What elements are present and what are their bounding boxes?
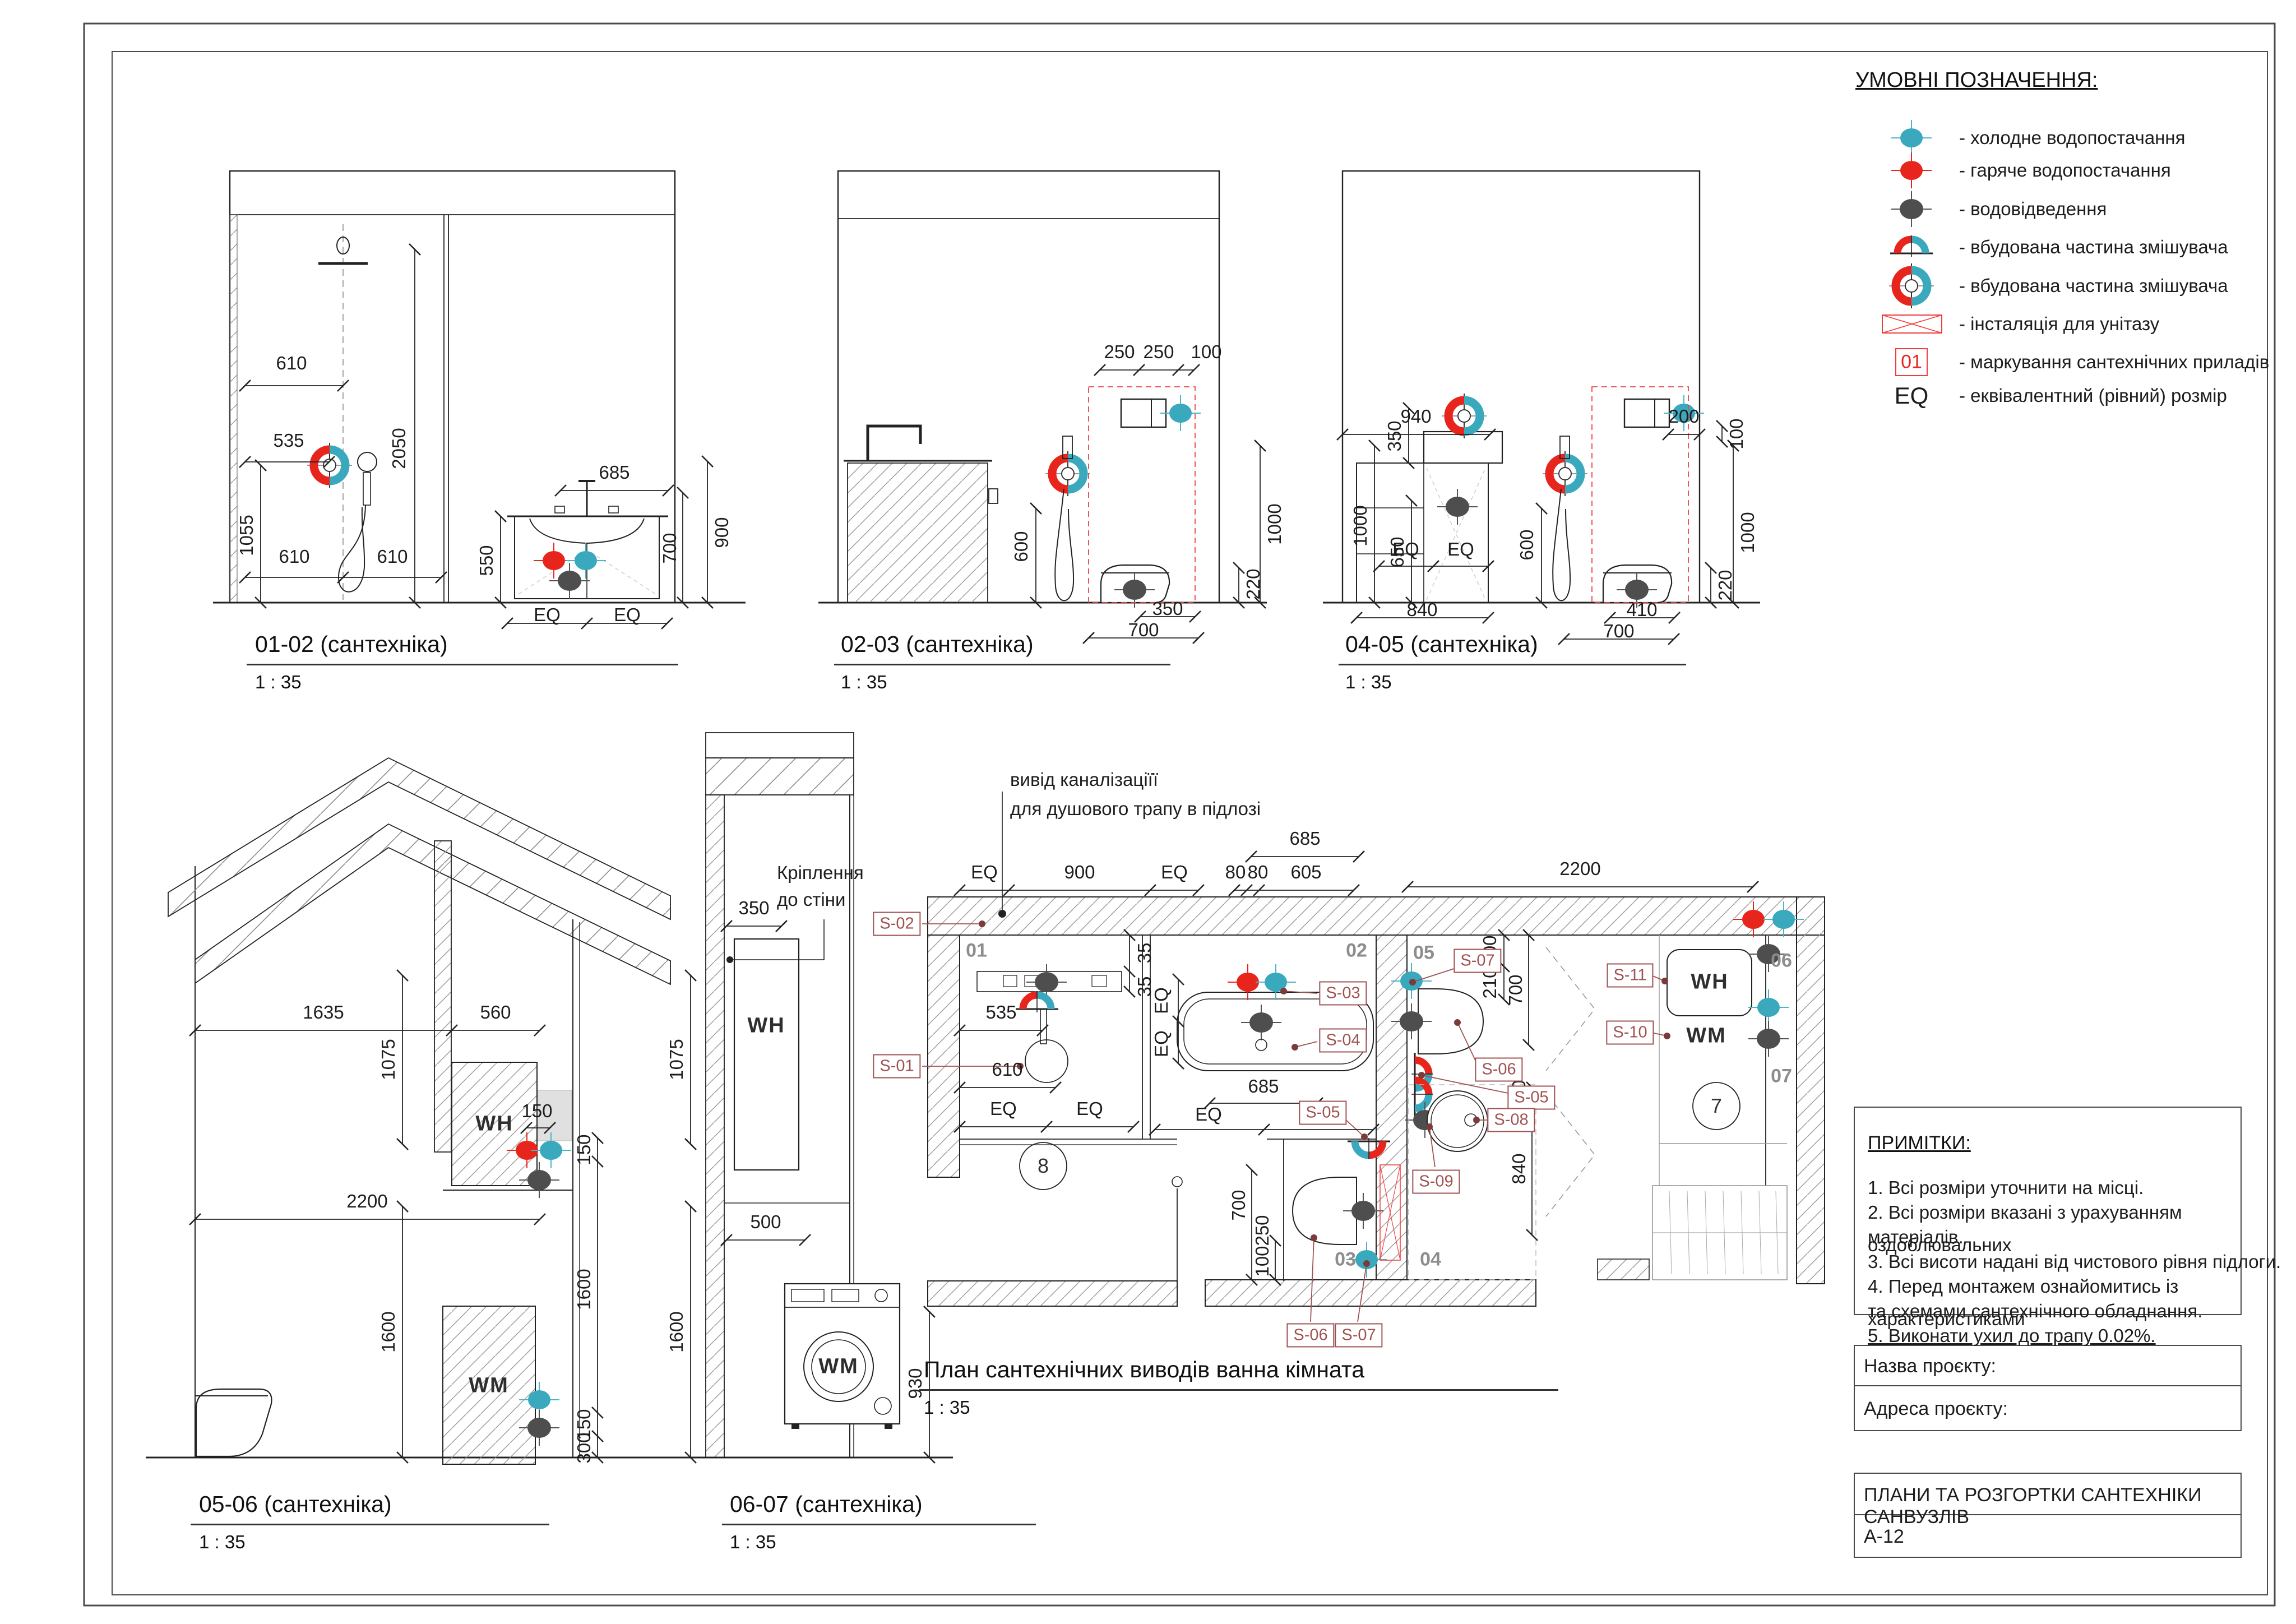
dim: 700 [1228, 1190, 1249, 1220]
dim: EQ [990, 1098, 1017, 1119]
room-number: 05 [1413, 942, 1434, 964]
dim: EQ [1076, 1098, 1103, 1119]
dim: 1000 [1737, 512, 1758, 553]
dim: 840 [1508, 1153, 1530, 1184]
dim: 700 [1603, 621, 1634, 642]
dim: EQ [534, 604, 561, 626]
sheet-title: ПЛАНИ ТА РОЗГОРТКИ САНТЕХНІКИ САНВУЗЛІВ [1864, 1484, 2296, 1528]
view-title: План сантехнічних виводів ванна кімната [924, 1357, 1364, 1383]
dim: 535 [273, 430, 304, 451]
dim: 1600 [666, 1311, 687, 1352]
dim: 1600 [573, 1269, 595, 1310]
room-circle-label: 8 [1038, 1154, 1049, 1178]
dim: 610 [276, 353, 307, 374]
fixture-tag: S-07 [1335, 1324, 1382, 1348]
view-scale: 1 : 35 [1345, 672, 1392, 693]
water-heater-label: WH [475, 1112, 513, 1136]
dim: 900 [711, 517, 733, 548]
note-5: 5. Виконати ухил до трапу 0.02%. [1868, 1320, 2156, 1352]
dim: 600 [1011, 531, 1032, 562]
room-circle-label: 7 [1711, 1094, 1722, 1118]
fixture-tag: S-11 [1607, 964, 1653, 988]
dim: 685 [1289, 828, 1320, 849]
dim: 80 [1248, 862, 1269, 883]
dim: 605 [1290, 862, 1321, 883]
view-title: 05-06 (сантехніка) [199, 1491, 392, 1517]
view-title: 04-05 (сантехніка) [1345, 631, 1538, 658]
dim: 1635 [303, 1002, 344, 1023]
fixture-tag: S-08 [1487, 1108, 1535, 1132]
dim: 300 [573, 1432, 595, 1463]
room-number: 04 [1420, 1249, 1441, 1271]
dim: 1000 [1350, 505, 1371, 546]
dim: 500 [750, 1211, 781, 1233]
dim: 1000 [1264, 503, 1285, 544]
notes-title: ПРИМІТКИ: [1868, 1132, 1971, 1154]
dim: 150 [521, 1100, 552, 1122]
room-number: 06 [1771, 950, 1792, 972]
dim: 1055 [236, 515, 257, 556]
annotation: до стіни [777, 889, 845, 910]
dim: 700 [1128, 619, 1159, 641]
elevation-04-05 [1323, 171, 1760, 639]
dim: 350 [1384, 420, 1405, 451]
washing-machine-label: WM [818, 1355, 859, 1379]
dim: 2200 [1559, 858, 1600, 880]
legend-title: УМОВНІ ПОЗНАЧЕННЯ: [1855, 68, 2098, 92]
dim: 2050 [388, 428, 410, 469]
dim: 685 [1248, 1076, 1279, 1097]
view-scale: 1 : 35 [199, 1532, 246, 1553]
legend-label-eq: - еквівалентний (рівний) розмір [1959, 385, 2227, 406]
sheet-number: А-12 [1864, 1526, 1904, 1548]
fixture-tag: S-10 [1606, 1021, 1654, 1045]
room-number: 02 [1346, 940, 1367, 962]
title-rule [834, 664, 1170, 665]
drawing-sheet: УМОВНІ ПОЗНАЧЕННЯ: - холодне водопостача… [0, 0, 2296, 1624]
dim: 600 [1516, 529, 1538, 560]
dim: 550 [476, 545, 497, 576]
view-title: 06-07 (сантехніка) [730, 1491, 923, 1517]
fixture-tag: S-05 [1507, 1086, 1555, 1110]
fixture-tag: S-05 [1299, 1101, 1346, 1125]
dim: 610 [992, 1059, 1022, 1080]
dim: 1600 [378, 1311, 399, 1352]
dim: 1075 [666, 1039, 687, 1080]
legend-label-mixer-half: - вбудована частина змішувача [1959, 237, 2228, 258]
fixture-tag: S-01 [873, 1054, 920, 1079]
dim: 610 [279, 546, 309, 567]
water-heater-label: WH [1691, 970, 1728, 994]
annotation: Кріплення [777, 862, 864, 883]
dim: 150 [573, 1134, 595, 1165]
legend-label-tag: - маркування сантехнічних приладів [1959, 351, 2269, 373]
legend-label-cold: - холодне водопостачання [1959, 127, 2186, 149]
fixture-tag: S-02 [873, 912, 920, 936]
dim: 410 [1626, 599, 1657, 621]
fixture-tag: S-04 [1319, 1029, 1367, 1053]
dim: EQ [1195, 1104, 1222, 1125]
dim: 700 [1505, 974, 1526, 1005]
dim: 1075 [378, 1039, 399, 1080]
water-heater-label: WH [747, 1014, 785, 1038]
fixture-tag: S-06 [1475, 1058, 1522, 1082]
dim: 2200 [346, 1191, 387, 1212]
dim: 100 [1252, 1246, 1273, 1276]
dim: 685 [599, 462, 629, 483]
view-title: 02-03 (сантехніка) [841, 631, 1034, 658]
dim: 700 [659, 533, 681, 563]
dim: 610 [377, 546, 408, 567]
room-number: 03 [1335, 1249, 1356, 1271]
fixture-tag: S-03 [1319, 982, 1367, 1006]
title-rule [919, 1389, 1558, 1391]
dim: 930 [905, 1368, 926, 1399]
dim: EQ [614, 604, 641, 626]
dim: 250 [1252, 1215, 1273, 1246]
fixture-tag: S-06 [1286, 1324, 1334, 1348]
dim: 350 [1152, 598, 1183, 619]
view-scale: 1 : 35 [255, 672, 302, 693]
legend-tag-badge: 01 [1901, 351, 1922, 373]
dim: EQ [1161, 862, 1188, 883]
annotation: вивід каналізаціїї [1010, 769, 1158, 790]
dim: 840 [1406, 599, 1437, 621]
dim: 350 [738, 897, 769, 919]
legend-label-drain: - водовідведення [1959, 198, 2107, 220]
dim: 100 [1191, 341, 1221, 363]
dim: EQ [971, 862, 998, 883]
legend-icons [1882, 120, 1942, 376]
dim: 560 [480, 1002, 511, 1023]
washing-machine-label: WM [469, 1374, 509, 1398]
view-scale: 1 : 35 [730, 1532, 776, 1553]
title-rule [722, 1524, 1036, 1525]
dim: 100 [1726, 418, 1747, 449]
dim: 535 [985, 1002, 1016, 1023]
annotation: для душового трапу в підлозі [1010, 798, 1261, 820]
dim: 35 [1134, 943, 1155, 964]
legend-eq-symbol: EQ [1895, 382, 1929, 409]
dim: 250 [1104, 341, 1135, 363]
room-number: 01 [966, 940, 987, 962]
dim: 200 [1668, 406, 1699, 427]
dim: EQ [1447, 539, 1474, 560]
elevation-05-06 [146, 758, 695, 1464]
title-rule [191, 1524, 549, 1525]
dim: EQ [1392, 539, 1419, 560]
dim: EQ [1151, 987, 1172, 1014]
fixture-tag: S-09 [1412, 1170, 1460, 1194]
fixture-tag: S-07 [1453, 949, 1501, 973]
dim: EQ [1151, 1030, 1172, 1057]
washing-machine-label: WM [1686, 1024, 1726, 1048]
dim: 220 [1715, 570, 1736, 600]
dim: 900 [1064, 862, 1095, 883]
legend-label-mixer-ring: - вбудована частина змішувача [1959, 275, 2228, 297]
bathroom-plan [922, 792, 1825, 1322]
project-name-label: Назва проєкту: [1864, 1355, 1996, 1377]
dim: 80 [1225, 862, 1246, 883]
dim: 250 [1143, 341, 1174, 363]
dim: 220 [1243, 568, 1264, 599]
legend-label-hot: - гаряче водопостачання [1959, 160, 2171, 181]
room-number: 07 [1771, 1066, 1792, 1088]
title-rule [1339, 664, 1686, 665]
view-scale: 1 : 35 [924, 1397, 970, 1418]
legend-label-installation: - інсталяція для унітазу [1959, 313, 2159, 335]
project-address-label: Адреса проєкту: [1864, 1398, 2008, 1420]
view-scale: 1 : 35 [841, 672, 887, 693]
view-title: 01-02 (сантехніка) [255, 631, 448, 658]
elevation-02-03 [818, 171, 1267, 638]
title-rule [247, 664, 678, 665]
elevation-06-07 [691, 733, 953, 1458]
